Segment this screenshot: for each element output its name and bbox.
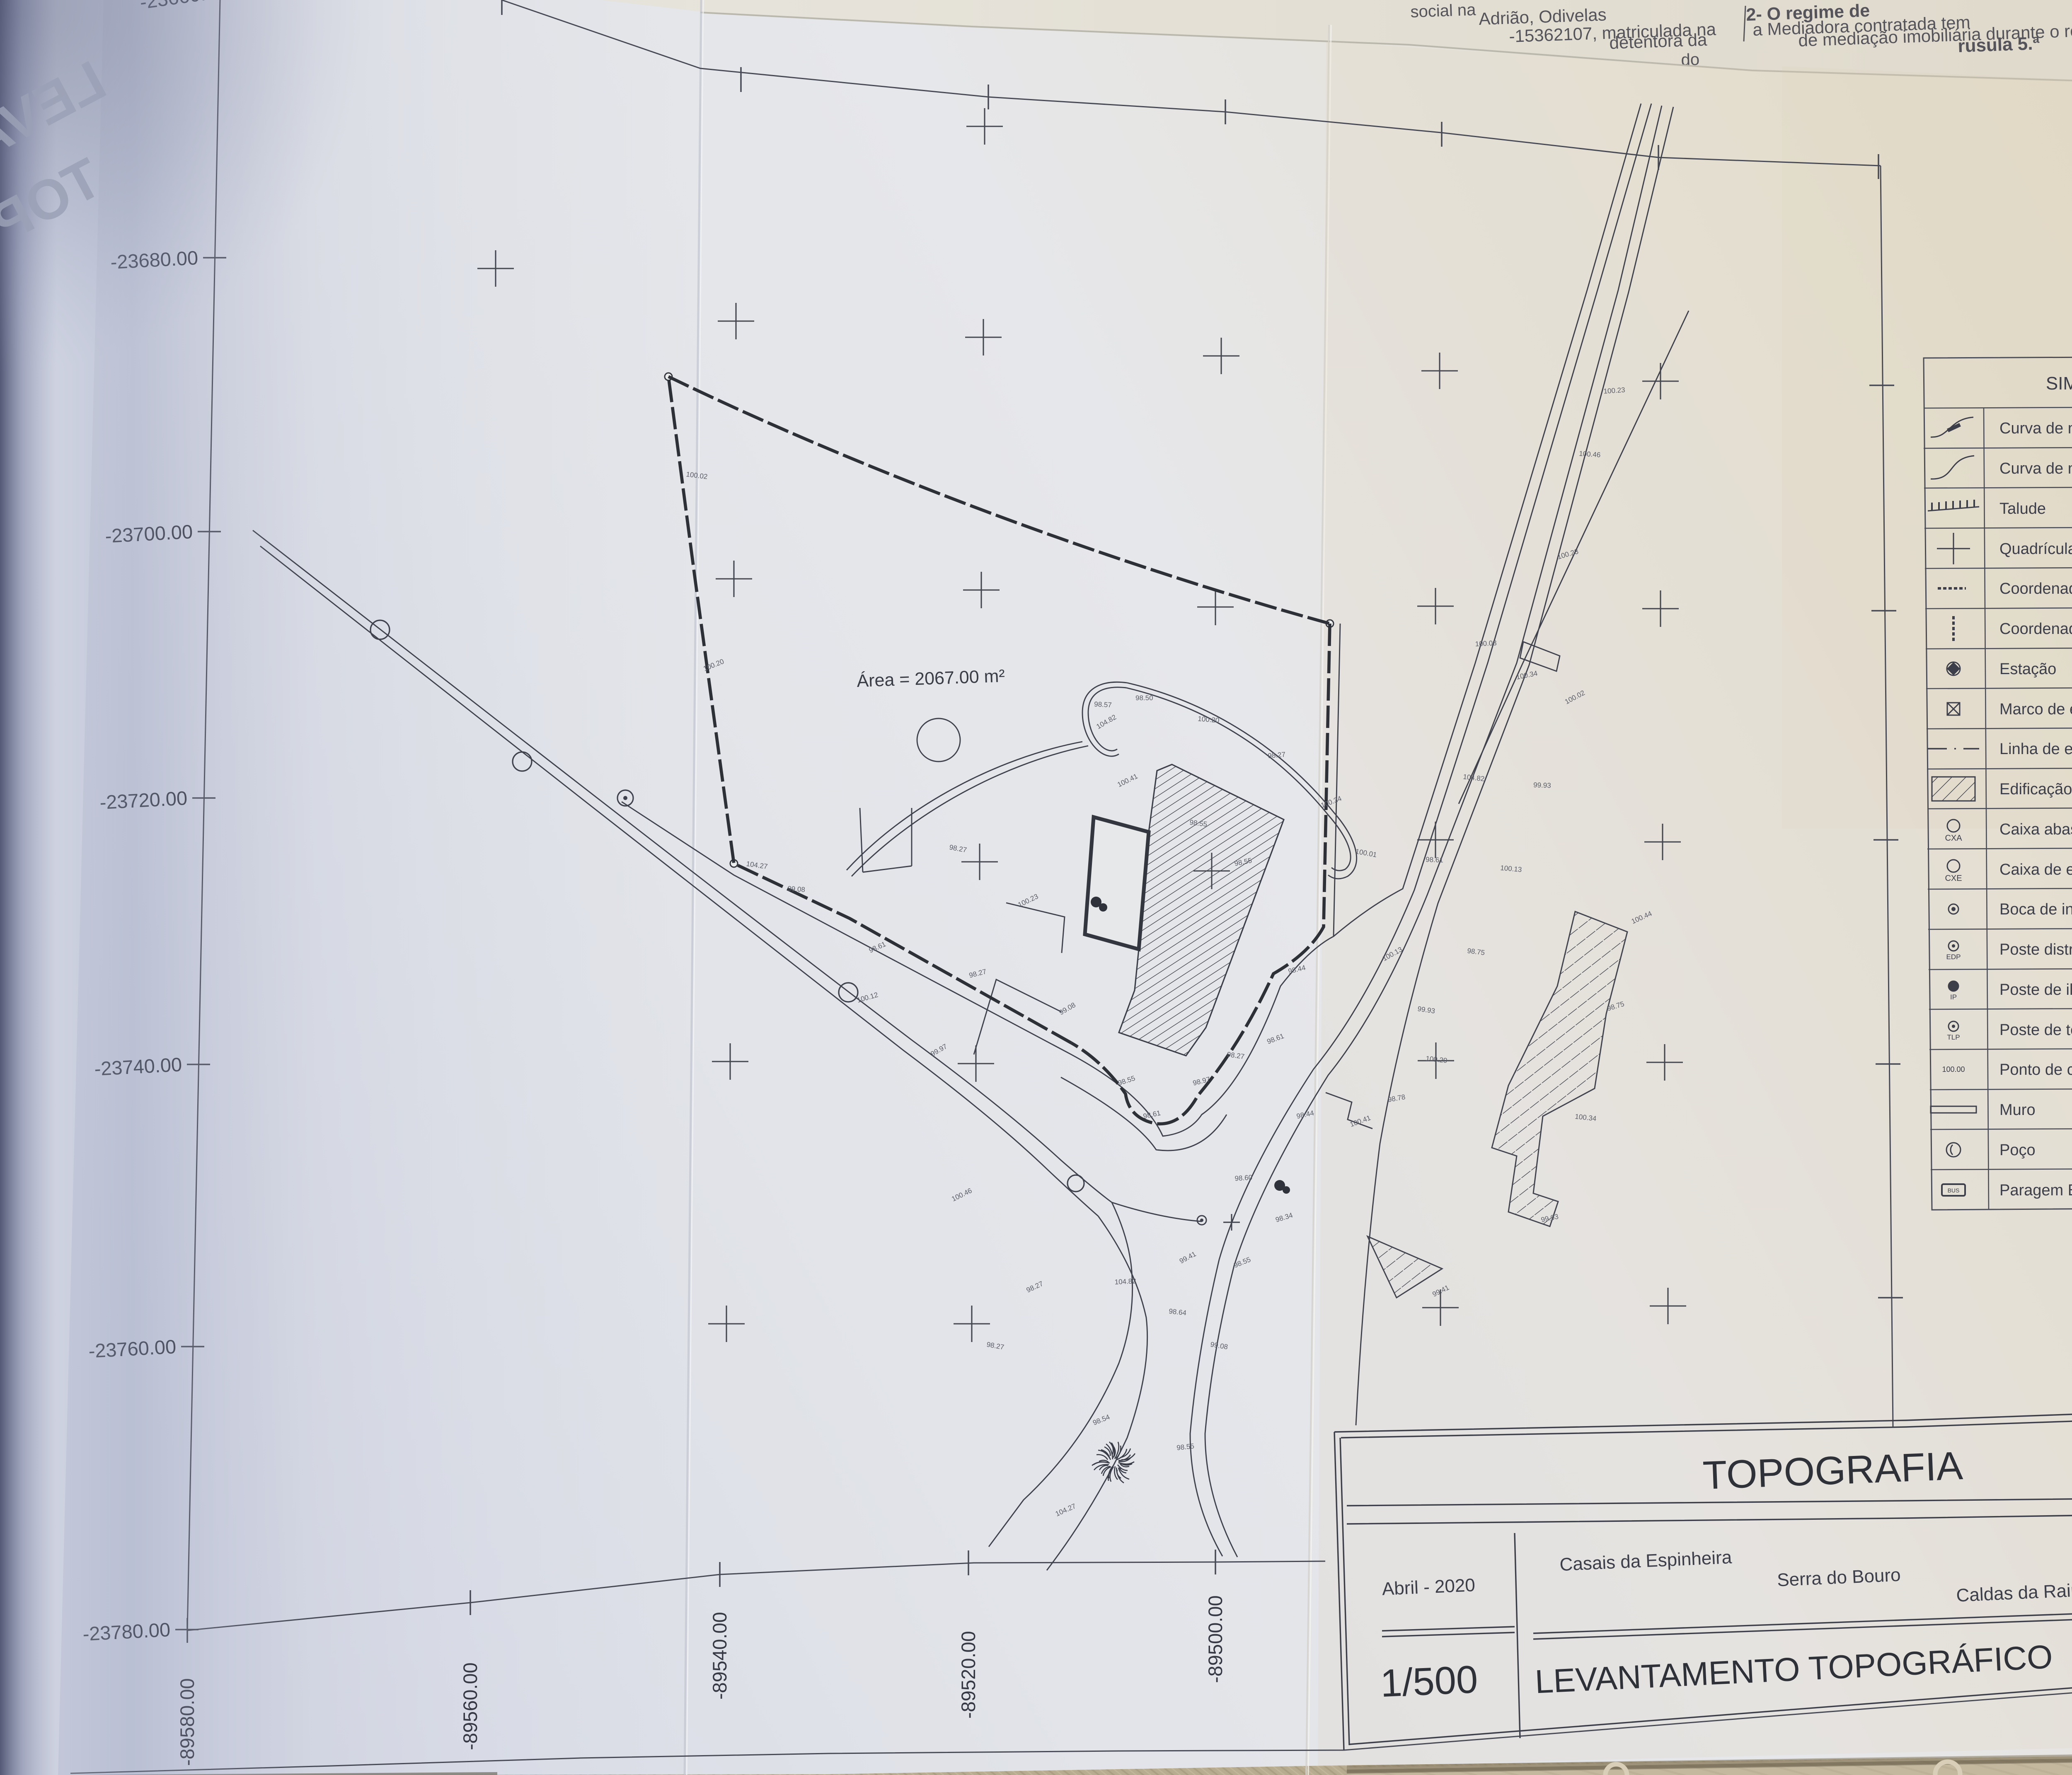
svg-text:Coordenada p: Coordenada p [1999, 580, 2072, 597]
svg-text:EDP: EDP [1946, 953, 1961, 961]
svg-text:99.08: 99.08 [787, 885, 806, 894]
svg-text:Caixa abastecimento de água: Caixa abastecimento de água [1999, 821, 2072, 838]
svg-text:100.23: 100.23 [1603, 386, 1625, 395]
svg-text:98.50: 98.50 [1135, 694, 1153, 702]
svg-text:Abril - 2020: Abril - 2020 [1382, 1575, 1476, 1599]
svg-text:Curva de nível mestra com cota: Curva de nível mestra com cota [1999, 420, 2072, 437]
svg-text:-89540.00: -89540.00 [709, 1612, 731, 1700]
svg-text:100.00: 100.00 [1942, 1065, 1965, 1074]
svg-text:Talude: Talude [1999, 500, 2046, 518]
svg-text:Coordenada m: Coordenada m [1999, 620, 2072, 638]
svg-text:SIMBOLOGIA: SIMBOLOGIA [2046, 373, 2072, 394]
svg-text:CXE: CXE [1945, 874, 1962, 883]
svg-text:Ponto de cota: Ponto de cota [1999, 1061, 2072, 1079]
svg-text:IP: IP [1950, 993, 1957, 1001]
svg-text:Boca de incêndio: Boca de incêndio [1999, 901, 2072, 918]
svg-text:1/500: 1/500 [1380, 1657, 1479, 1705]
svg-text:98.60: 98.60 [1234, 1173, 1253, 1183]
svg-text:Paragem BUS: Paragem BUS [1999, 1182, 2072, 1199]
svg-text:Poço: Poço [1999, 1141, 2036, 1159]
svg-text:BUS: BUS [1948, 1187, 1960, 1194]
svg-text:detentora da: detentora da [1609, 30, 1708, 53]
svg-text:104.82: 104.82 [1114, 1277, 1136, 1286]
svg-text:Caixa de esgoto doméstico: Caixa de esgoto doméstico [1999, 861, 2072, 878]
svg-text:100.03: 100.03 [1475, 639, 1497, 648]
svg-text:CXA: CXA [1945, 834, 1962, 843]
svg-text:-89500.00: -89500.00 [1204, 1595, 1226, 1683]
svg-text:98.27: 98.27 [1268, 750, 1286, 760]
svg-text:98.61: 98.61 [1426, 856, 1443, 864]
svg-text:Quadrícula de coordenação: Quadrícula de coordenação [1999, 540, 2072, 558]
svg-text:TLP: TLP [1947, 1033, 1960, 1041]
svg-text:98.57: 98.57 [1094, 700, 1112, 709]
svg-text:-89520.00: -89520.00 [957, 1631, 979, 1719]
svg-text:social na: social na [1410, 0, 1477, 21]
svg-text:Linha de estrema: Linha de estrema [1999, 740, 2072, 758]
svg-text:-89560.00: -89560.00 [459, 1662, 481, 1750]
svg-text:Muro: Muro [1999, 1101, 2036, 1119]
svg-text:Edificação: Edificação [1999, 781, 2072, 798]
svg-text:Poste de iluminação: Poste de iluminação [1999, 981, 2072, 999]
svg-text:Curva de nível secundária: Curva de nível secundária [1999, 460, 2072, 477]
svg-text:Poste de telecomunicações: Poste de telecomunicações [1999, 1021, 2072, 1039]
svg-text:Poste distribuição EDP: Poste distribuição EDP [1999, 941, 2072, 958]
svg-text:Estação: Estação [1999, 660, 2056, 678]
svg-text:Marco de estrema de propriedad: Marco de estrema de propriedade [1999, 701, 2072, 718]
svg-text:rusula 5.ª: rusula 5.ª [1958, 33, 2041, 56]
svg-text:99.93: 99.93 [1533, 781, 1551, 789]
svg-text:100.46: 100.46 [1579, 450, 1601, 459]
